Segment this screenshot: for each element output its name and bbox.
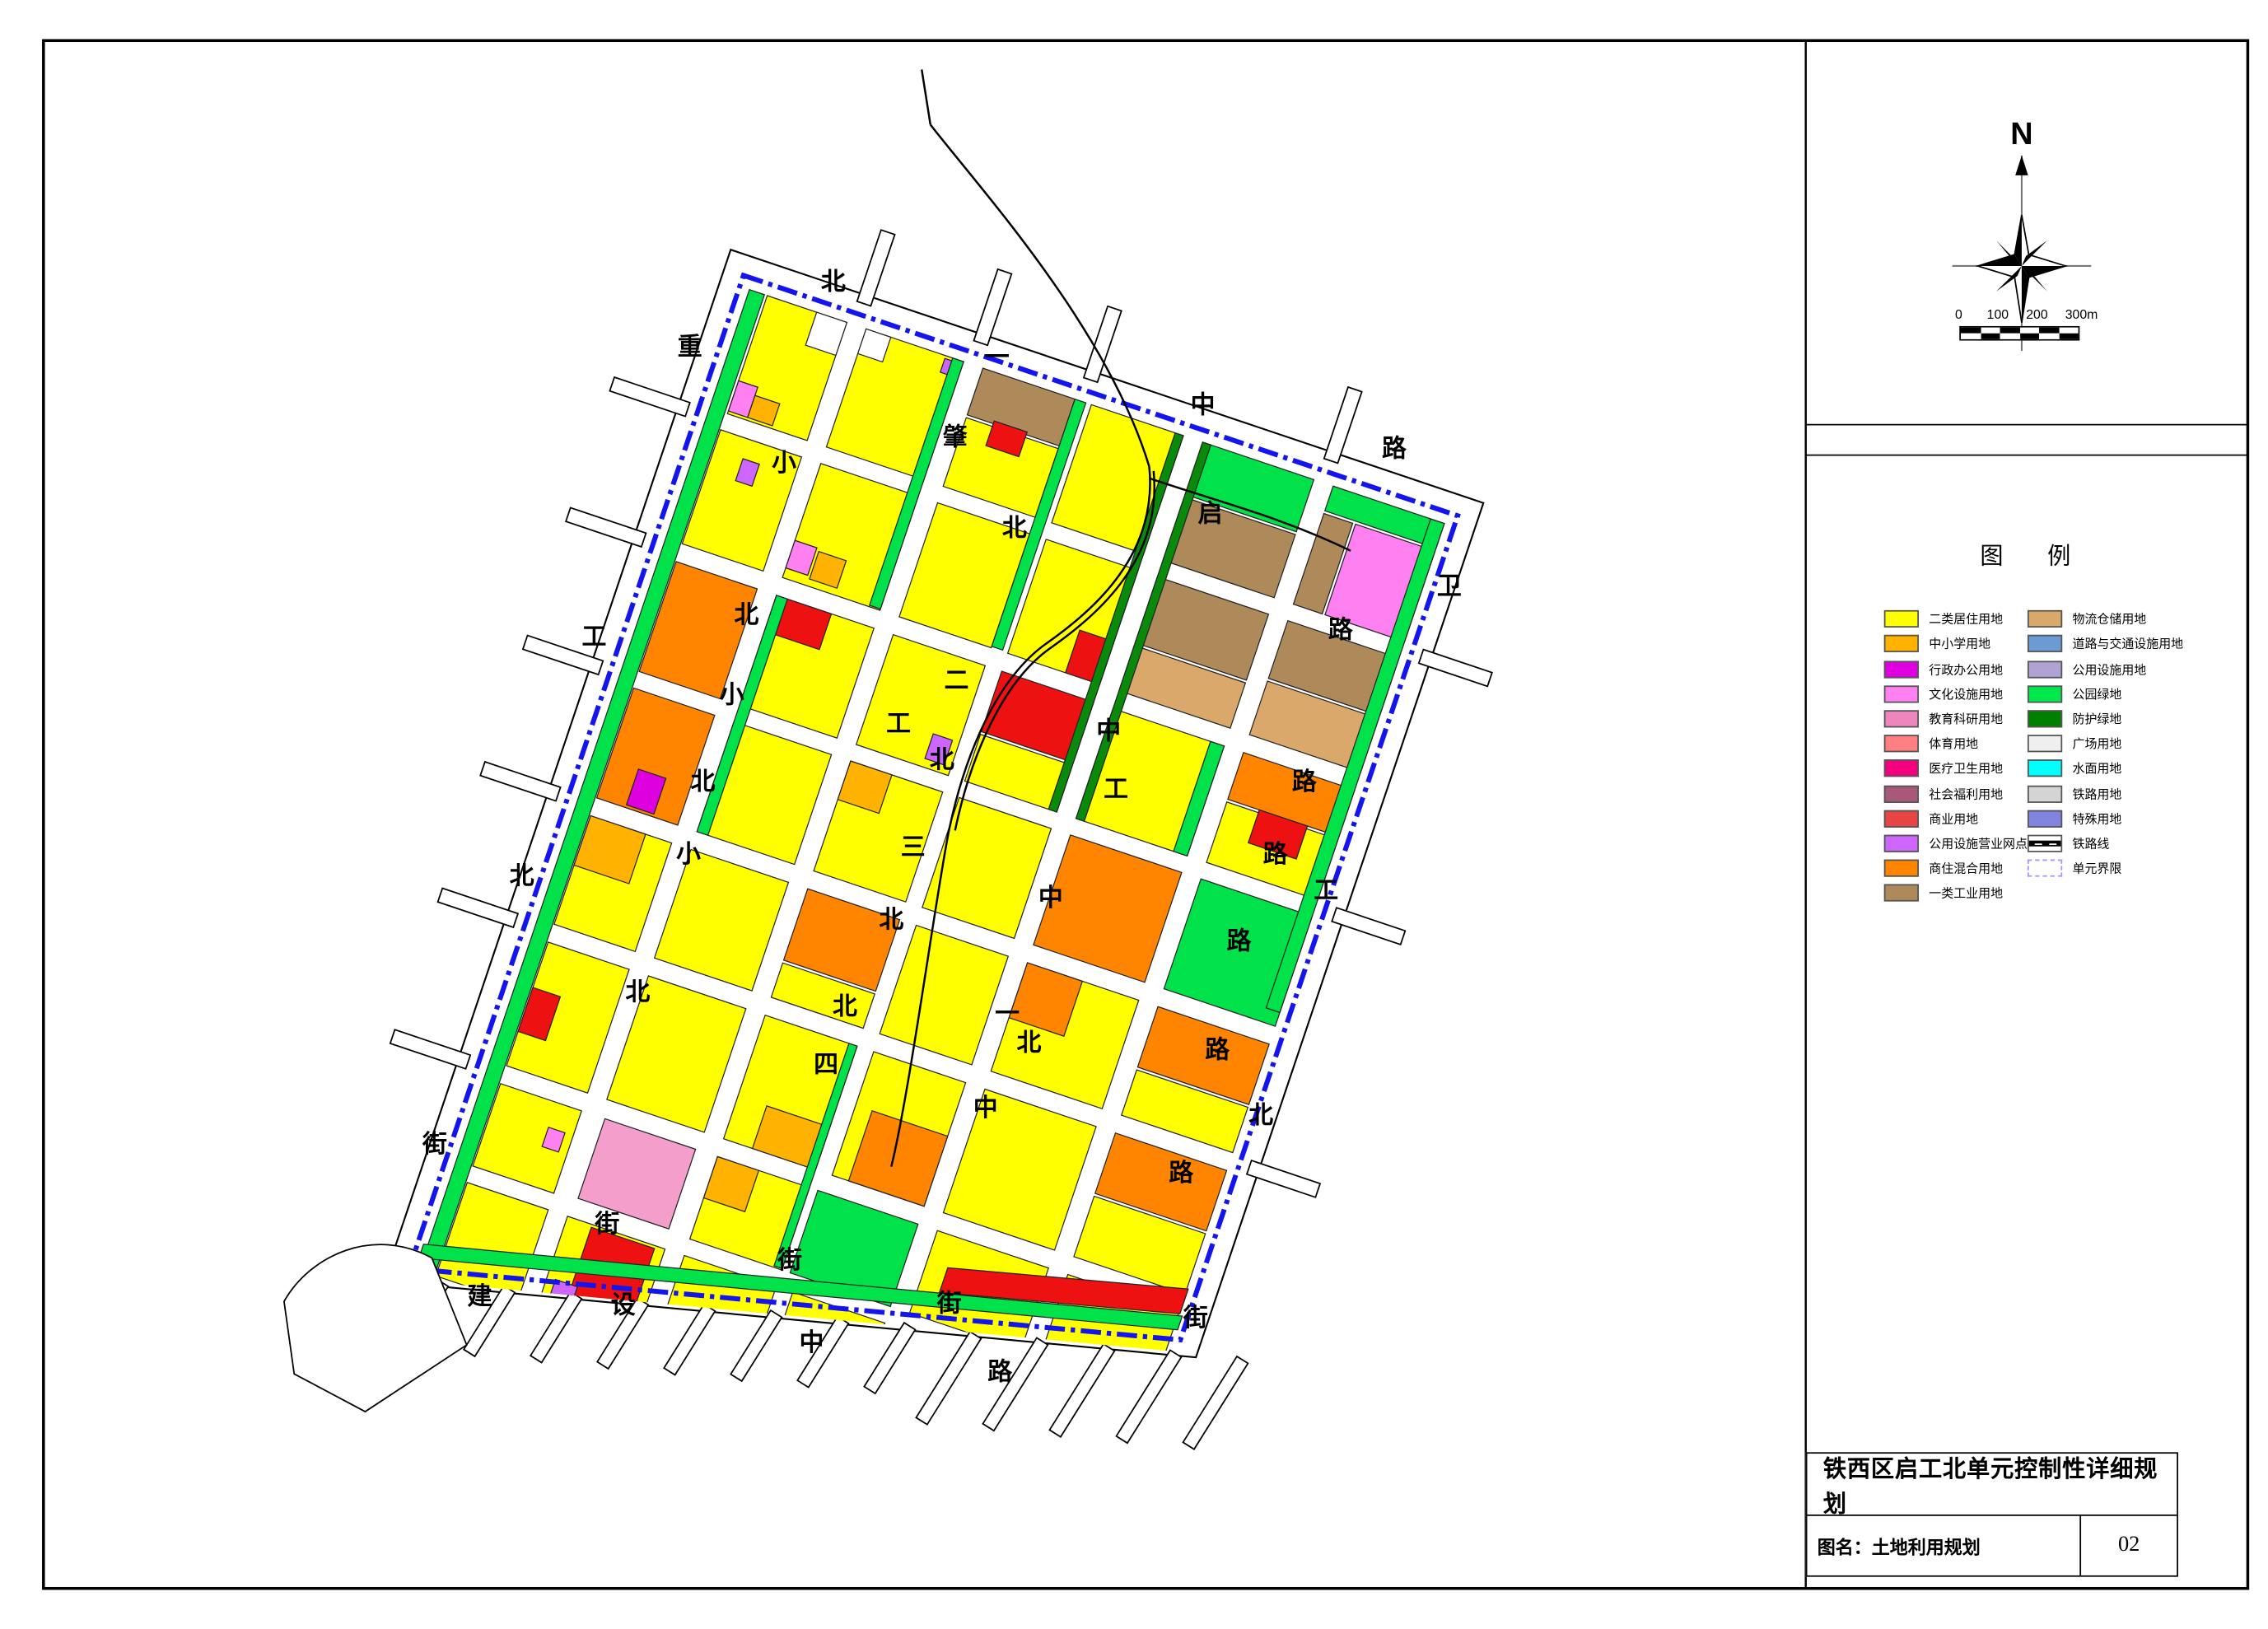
scale-segment <box>2000 334 2020 339</box>
scale-bar: 0100200300m <box>1959 307 2133 348</box>
scale-segment <box>1961 328 1981 334</box>
scale-segment <box>2019 334 2039 339</box>
road-name-label: 路 <box>1169 1160 1194 1187</box>
legend-swatch <box>1884 760 1919 777</box>
plan-sheet: 北一中路重工北街小北路肇工北街北二中路小北路启工北街卫工北街北三中路小北一路北四… <box>0 0 2268 1629</box>
road-name-label: 设 <box>611 1291 636 1319</box>
legend-item-label: 防护绿地 <box>2073 710 2122 727</box>
project-title: 铁西区启工北单元控制性详细规划 <box>1807 1454 2177 1516</box>
road-stub <box>1117 1350 1182 1443</box>
legend-item-label: 商业用地 <box>1929 810 1978 827</box>
road-name-label: 重 <box>678 334 702 361</box>
road-name-label: 卫 <box>1437 573 1462 600</box>
legend-swatch <box>1884 636 1919 653</box>
legend-item-label: 一类工业用地 <box>1929 885 2003 902</box>
legend-swatch <box>2028 735 2062 753</box>
road-name-label: 小 <box>676 841 701 868</box>
legend-swatch <box>1884 735 1919 753</box>
road-name-label: 小 <box>720 682 744 709</box>
road-name-label: 北 <box>930 747 954 774</box>
road-name-label: 中 <box>973 1095 998 1122</box>
legend-item-label: 铁路线 <box>2073 835 2110 852</box>
legend-item-label: 行政办公用地 <box>1929 660 2003 678</box>
scale-segment <box>2000 328 2020 334</box>
scale-segment <box>1961 334 1981 339</box>
legend-swatch <box>1884 785 1919 802</box>
legend-swatch <box>1884 685 1919 702</box>
legend-item-label: 单元界限 <box>2073 860 2122 877</box>
road-name-label: 北 <box>691 768 716 796</box>
scale-segment <box>1981 334 2000 339</box>
legend-item-label: 医疗卫生用地 <box>1929 760 2003 777</box>
road-name-label: 中 <box>1096 717 1121 744</box>
legend-swatch <box>2028 810 2062 827</box>
north-arrowhead-icon <box>2015 156 2028 175</box>
legend-swatch <box>2028 760 2062 777</box>
north-label: N <box>2010 117 2032 152</box>
railway-line-swatch <box>2028 835 2062 852</box>
road-name-label: 街 <box>936 1291 962 1318</box>
scale-segment <box>2059 328 2079 334</box>
road-name-label: 中 <box>1191 392 1216 419</box>
road-name-label: 一 <box>985 343 1010 371</box>
legend-item: 广场用地 <box>2028 735 2183 753</box>
legend-item: 一类工业用地 <box>1884 885 2052 903</box>
legend-item: 水面用地 <box>2028 759 2183 777</box>
drawing-name: 图名：土地利用规划 <box>1807 1516 2079 1575</box>
legend-item-label: 教育科研用地 <box>1929 710 2003 727</box>
road-name-label: 北 <box>510 862 534 889</box>
legend-item: 公园绿地 <box>2028 685 2183 703</box>
legend-swatch <box>1884 810 1919 827</box>
road-stub <box>730 1310 782 1381</box>
road-stub <box>1183 1356 1248 1449</box>
road-stub <box>566 507 646 547</box>
legend-swatch <box>2028 636 2062 653</box>
road-name-label: 路 <box>1292 768 1318 796</box>
legend-swatch <box>1884 860 1919 877</box>
scale-tick-label: 300m <box>2065 307 2098 322</box>
legend-item-label: 商住混合用地 <box>1929 860 2003 877</box>
road-stub <box>480 762 560 801</box>
road-stub <box>1419 650 1492 687</box>
legend-swatch <box>2028 685 2062 702</box>
legend-column-right: 物流仓储用地道路与交通设施用地公用设施用地公园绿地防护绿地广场用地水面用地铁路用… <box>2028 610 2183 878</box>
unit-boundary-swatch <box>2028 860 2062 877</box>
road-name-label: 路 <box>1227 928 1253 955</box>
road-name-label: 北 <box>1248 1102 1273 1129</box>
legend-swatch <box>1884 610 1919 628</box>
legend-item-label: 铁路用地 <box>2073 785 2122 802</box>
road-name-label: 路 <box>1205 1037 1230 1064</box>
road-name-label: 中 <box>800 1329 824 1356</box>
road-stub <box>390 1029 470 1069</box>
legend-swatch <box>2028 710 2062 727</box>
road-name-label: 小 <box>772 450 796 477</box>
road-name-label: 启 <box>1197 501 1222 528</box>
railway-line <box>922 69 931 124</box>
legend-title: 图 例 <box>1806 536 2248 571</box>
road-name-label: 北 <box>879 906 903 933</box>
road-stub <box>1324 387 1362 463</box>
road-name-label: 中 <box>1038 885 1063 912</box>
legend-item-label: 文化设施用地 <box>1929 685 2003 702</box>
legend-item: 特殊用地 <box>2028 810 2183 828</box>
sheet-number: 02 <box>2079 1516 2177 1575</box>
legend-swatch <box>2028 610 2062 628</box>
title-block: 铁西区启工北单元控制性详细规划 图名：土地利用规划 02 <box>1806 1452 2178 1576</box>
road-stub <box>609 377 689 417</box>
legend-item: 物流仓储用地 <box>2028 610 2183 628</box>
legend-item-label: 公园绿地 <box>2073 685 2122 702</box>
road-name-label: 肇 <box>943 423 968 450</box>
road-stub <box>1049 1344 1114 1437</box>
road-name-label: 建 <box>468 1283 492 1310</box>
legend-swatch <box>2028 785 2062 802</box>
road-stub <box>664 1305 715 1375</box>
scale-tick-label: 0 <box>1955 307 1962 322</box>
legend-swatch <box>1884 835 1919 852</box>
road-name-label: 路 <box>1382 435 1407 462</box>
road-name-label: 工 <box>582 623 607 651</box>
legend-item-label: 水面用地 <box>2073 760 2122 777</box>
road-name-label: 街 <box>777 1247 802 1274</box>
road-name-label: 路 <box>1328 616 1354 643</box>
legend-item: 防护绿地 <box>2028 710 2183 728</box>
legend-swatch <box>1884 885 1919 902</box>
legend-swatch <box>1884 660 1919 678</box>
legend-item: 单元界限 <box>2028 859 2183 877</box>
legend-item: 道路与交通设施用地 <box>2028 635 2183 653</box>
road-stub <box>916 1332 981 1425</box>
legend-item: 铁路用地 <box>2028 785 2183 803</box>
road-stub <box>530 1292 581 1363</box>
road-name-label: 北 <box>1002 515 1027 542</box>
scale-segment <box>1981 328 2000 334</box>
road-name-label: 街 <box>422 1131 447 1158</box>
road-name-label: 三 <box>901 833 926 861</box>
legend-item-label: 物流仓储用地 <box>2073 610 2147 628</box>
road-stub <box>973 269 1011 345</box>
legend-swatch <box>2028 660 2062 678</box>
road-name-label: 北 <box>821 268 846 296</box>
legend-item: 公用设施用地 <box>2028 660 2183 678</box>
road-name-label: 四 <box>814 1051 838 1078</box>
scale-segment <box>2019 328 2039 334</box>
road-name-label: 工 <box>1314 877 1338 904</box>
road-stub <box>857 230 895 306</box>
legend-item-label: 公用设施用地 <box>2073 660 2147 678</box>
legend-item-label: 社会福利用地 <box>1929 785 2003 802</box>
scale-tick-label: 200 <box>2026 307 2047 322</box>
legend-item-label: 特殊用地 <box>2073 810 2122 827</box>
road-name-label: 工 <box>1104 776 1128 803</box>
road-stub <box>864 1323 915 1393</box>
road-stub <box>1332 908 1405 945</box>
road-name-label: 路 <box>987 1358 1013 1385</box>
scale-segment <box>2059 334 2079 339</box>
road-name-label: 路 <box>1263 841 1289 868</box>
legend-item-label: 中小学用地 <box>1929 636 1990 653</box>
road-name-label: 街 <box>594 1211 619 1238</box>
road-stub <box>1247 1160 1320 1197</box>
road-name-label: 工 <box>886 711 911 738</box>
legend-item: 铁路线 <box>2028 834 2183 852</box>
scale-tick-label: 100 <box>1987 307 2009 322</box>
legend-swatch <box>1884 710 1919 727</box>
road-name-label: 北 <box>625 978 650 1006</box>
road-name-label: 一 <box>995 1001 1020 1028</box>
road-name-label: 北 <box>833 993 857 1020</box>
scale-segment <box>2039 328 2059 334</box>
map-rotated-layer <box>299 164 1563 1608</box>
road-name-label: 街 <box>1183 1305 1208 1332</box>
legend-item-label: 二类居住用地 <box>1929 610 2003 628</box>
road-name-label: 北 <box>734 602 758 629</box>
road-name-label: 北 <box>1016 1029 1041 1057</box>
scale-bar-graphic <box>1959 326 2079 341</box>
legend-item-label: 道路与交通设施用地 <box>2073 636 2184 653</box>
road-stub <box>1084 306 1122 382</box>
legend-item-label: 体育用地 <box>1929 735 1978 753</box>
scale-segment <box>2039 334 2059 339</box>
legend-item-label: 广场用地 <box>2073 735 2122 753</box>
road-name-label: 二 <box>945 667 969 694</box>
road-stub <box>438 888 518 927</box>
